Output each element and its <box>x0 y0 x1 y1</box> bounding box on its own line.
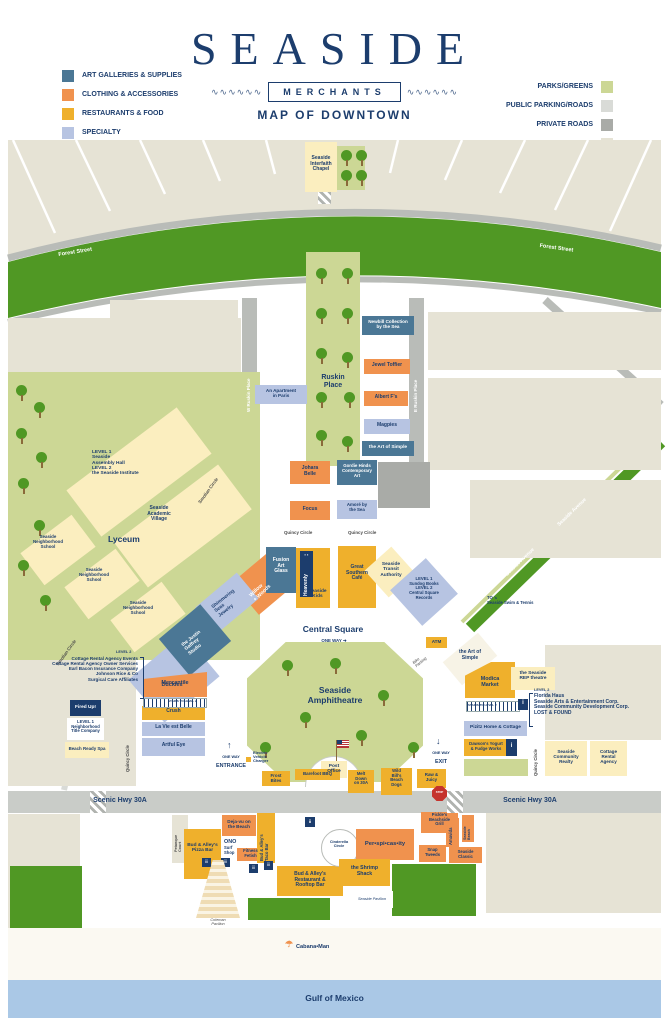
shrimp-shack-label: the Shrimp Shack <box>339 866 390 878</box>
crush-label: Crush <box>142 709 205 715</box>
tree-icon <box>40 595 51 611</box>
pizza-bar-label: Bud & Alley's Pizza Bar <box>184 843 221 854</box>
raw-juicy-label: Raw & Juicy <box>417 773 446 783</box>
bracket-florida-list <box>529 693 533 727</box>
amore-label: Amoré by the Sea <box>337 503 377 513</box>
cottage-list: Cottage Rental Agency Events Cottage Ren… <box>28 656 138 682</box>
apartment-paris-label: An Apartment in Paris <box>255 388 307 398</box>
restroom-icon-2: ii <box>221 859 230 864</box>
restroom-icon-5: ii <box>305 819 315 824</box>
ono-surf-label: Surf Shop <box>224 846 234 855</box>
exit-oneway: ONE WAY <box>426 751 456 755</box>
budalleys-restaurant-label: Bud & Alley's Restaurant & Rooftop Bar <box>277 872 343 889</box>
tree-icon <box>330 658 341 674</box>
tree-icon <box>316 308 327 324</box>
tree-icon <box>342 352 353 368</box>
cabana-man-label: Cabana•Man <box>296 944 329 950</box>
florida-list: Florida Haus Seaside Arts & Entertainmen… <box>534 694 629 716</box>
tree-icon <box>282 660 293 676</box>
tree-icon <box>378 690 389 706</box>
dejavu-label: Deja-vu on the Beach <box>222 819 256 829</box>
pickles-label: Pickle's Beachside Grill <box>421 813 458 827</box>
cinderella-label: Cinderella Circle <box>321 840 357 849</box>
melt-down-label: Melt Down on 30A <box>348 772 374 786</box>
magpies-label: Magpies <box>364 423 410 429</box>
kids-sign-icon: ▪ ▪ <box>300 553 313 557</box>
lots-under-forest-right <box>428 312 661 370</box>
stairs1-label: STAIRS TO LEVEL 2 <box>168 700 197 703</box>
chapel-label: Seaside Interfaith Chapel <box>305 156 337 173</box>
tree-icon <box>356 170 367 186</box>
quincy-vertical-right: Quincy Circle <box>534 749 539 776</box>
tree-icon <box>342 308 353 324</box>
flag <box>337 740 349 748</box>
atm-label: ATM <box>426 639 447 644</box>
great-southern-label: Great Southern Café <box>338 565 376 582</box>
gordie-hinds-label: Gordie Hinds Contemporary Art <box>337 464 377 479</box>
quincy-label-2: Quincy Circle <box>348 531 376 536</box>
stop-label: STOP <box>432 791 447 794</box>
artful-eye-label: Artful Eye <box>142 743 205 749</box>
taco-bar-label: Bud & Alley's Taco Bar <box>260 834 269 861</box>
tree-icon <box>342 436 353 452</box>
restroom-icon-1: ii <box>202 859 211 864</box>
tree-icon <box>356 730 367 746</box>
mercantile-label: Mercantile <box>143 680 207 686</box>
modica-label: Modica Market <box>465 676 515 688</box>
transit-label: Seaside Transit Authority <box>374 562 408 578</box>
amavida-label: Amavida <box>449 828 454 845</box>
title-company-label: LEVEL 1 Neighborhood Title Company <box>67 720 104 734</box>
bracket-cottage-list <box>140 657 144 699</box>
florida-list-level: LEVEL 2 <box>534 688 549 692</box>
central-square-label: Central Square <box>288 625 378 635</box>
crosswalk-30a-east <box>447 791 463 813</box>
tree-icon <box>16 428 27 444</box>
tree-icon <box>300 712 311 728</box>
exit-arrow: ↓ <box>436 736 441 746</box>
jewel-toffier-label: Jewel Toffier <box>364 363 410 369</box>
perspicasity-label: Per•spi•cas•ity <box>356 841 414 847</box>
modica-info-icon: i <box>518 700 528 707</box>
sand-strip <box>8 928 661 980</box>
tree-icon <box>342 268 353 284</box>
albert-fs-label: Albert F's <box>364 395 408 401</box>
to-swim-tennis: TO ➘ Seaside Swim & Tennis <box>487 596 539 605</box>
beach-spa-label: Beach Ready Spa <box>65 747 109 752</box>
quincy-vertical-left: Quincy Circle <box>126 745 131 772</box>
school2-label: Seaside Neighborhood School <box>72 568 116 583</box>
school3-label: Seaside Neighborhood School <box>116 601 160 616</box>
quincy-label-1: Quincy Circle <box>284 531 312 536</box>
stairs2-label: STAIRS TO LEVEL 2 <box>468 704 497 707</box>
entrance-label: ENTRANCE <box>212 763 250 769</box>
gray-parking-central <box>378 462 430 508</box>
seaside-pavilion-label: Seaside Pavilion <box>351 897 393 901</box>
art-of-simple2-label: the Art of Simple <box>447 650 493 661</box>
tree-icon <box>356 150 367 166</box>
cottage-list-level: LEVEL 2 <box>116 650 131 654</box>
tree-icon <box>18 478 29 494</box>
school1-label: Seaside Neighborhood School <box>26 535 70 550</box>
ruskin-place-label: Ruskin Place <box>312 374 354 390</box>
art-of-simple-label: the Art of Simple <box>362 445 414 450</box>
scenic-hwy-east: Scenic Hwy 30A <box>470 797 590 805</box>
seaside-merchants-map-page: SEASIDE ∿∿∿∿∿∿MERCHANTS∿∿∿∿∿∿ MAP OF DOW… <box>0 0 669 1024</box>
green-strip-dawsons <box>464 759 528 776</box>
tree-icon <box>316 268 327 284</box>
chapel-crosswalk <box>318 192 331 204</box>
exit-label: EXIT <box>426 759 456 765</box>
snap-tweeds-label: Snap Tweeds <box>419 848 446 857</box>
beach-green-left <box>10 866 82 928</box>
academic-label: Seaside Academic Village <box>138 506 180 523</box>
wild-bills-label: Wild Bill's Beach Dogs <box>381 769 412 788</box>
cabana-umbrella-icon: ☂ <box>285 939 293 949</box>
lots-mid-left <box>110 300 238 366</box>
ruskin-lots-west <box>259 302 305 466</box>
seaside-kids-label: Seaside Kids <box>305 589 330 600</box>
lyceum-label: Lyceum <box>108 535 140 545</box>
amphitheatre-label: Seaside Amphitheatre <box>293 686 377 705</box>
tree-icon <box>36 452 47 468</box>
beach-green-mid <box>248 898 330 920</box>
beach-green-right <box>392 864 476 916</box>
entrance-arrow: ↑ <box>227 740 232 750</box>
sundog-label: LEVEL 1 Sundog Books LEVEL 2 Central Squ… <box>399 577 449 601</box>
dawsons-info-icon: i <box>506 743 517 750</box>
lots-right-mid <box>428 378 661 470</box>
restroom-icon-4: ii <box>264 862 273 867</box>
assembly-label: LEVEL 1 Seaside Assembly Hall LEVEL 2 th… <box>92 450 139 477</box>
rep-theatre-label: the Seaside REP theatre <box>511 671 555 682</box>
coleman-label: Coleman Pavilion <box>200 918 236 927</box>
pizitz-label: Pizitz Home & Cottage <box>464 725 527 730</box>
fusion-label: Fusion Art Glass <box>266 558 296 575</box>
dawsons-label: Dawson's Yogurt & Fudge Works <box>464 742 508 751</box>
tree-icon <box>344 392 355 408</box>
community-realty-label: Seaside Community Realty <box>545 749 587 764</box>
cottage-agency-label: Cottage Rental Agency <box>590 749 627 764</box>
tree-icon <box>341 170 352 186</box>
restroom-icon-3: ii <box>249 865 258 870</box>
gulf-label: Gulf of Mexico <box>8 994 661 1004</box>
fired-up-label: Fired Up! <box>70 705 101 710</box>
seaside-classic-label: Seaside Classic <box>449 850 482 859</box>
ev-charger-label: Electric Vehicle Charger <box>253 751 268 764</box>
lavie-label: La Vie est Belle <box>142 725 205 731</box>
barefoot-bbq-label: Barefoot BBQ <box>295 772 340 777</box>
tree-icon <box>316 348 327 364</box>
tree-icon <box>18 560 29 576</box>
tree-icon <box>16 385 27 401</box>
beach-lots-right <box>486 813 661 913</box>
seaside-beach-label: Seaside Beach <box>463 826 471 840</box>
petanque-label: Petanque Court <box>174 835 183 852</box>
tree-icon <box>316 392 327 408</box>
focus-label: Focus <box>290 507 330 513</box>
w-ruskin-label: W Ruskin Place <box>246 378 251 412</box>
ev-charger-square <box>246 757 251 762</box>
frost-bites-label: Frost Bites <box>262 774 290 784</box>
map-canvas: Forest StreetForest StreetSeaside Interf… <box>0 0 669 1024</box>
newbill-label: Newbill Collection by the Sea <box>362 319 414 329</box>
one-way-central: ONE WAY ➜ <box>304 639 364 644</box>
tree-icon <box>408 742 419 758</box>
entrance-oneway: ONE WAY <box>216 755 246 759</box>
scenic-hwy-west: Scenic Hwy 30A <box>70 797 170 805</box>
e-ruskin-label: E Ruskin Place <box>413 380 418 412</box>
tree-icon <box>316 430 327 446</box>
tree-icon <box>341 150 352 166</box>
johara-belle-label: Johara Belle <box>290 466 330 477</box>
tree-icon <box>34 402 45 418</box>
